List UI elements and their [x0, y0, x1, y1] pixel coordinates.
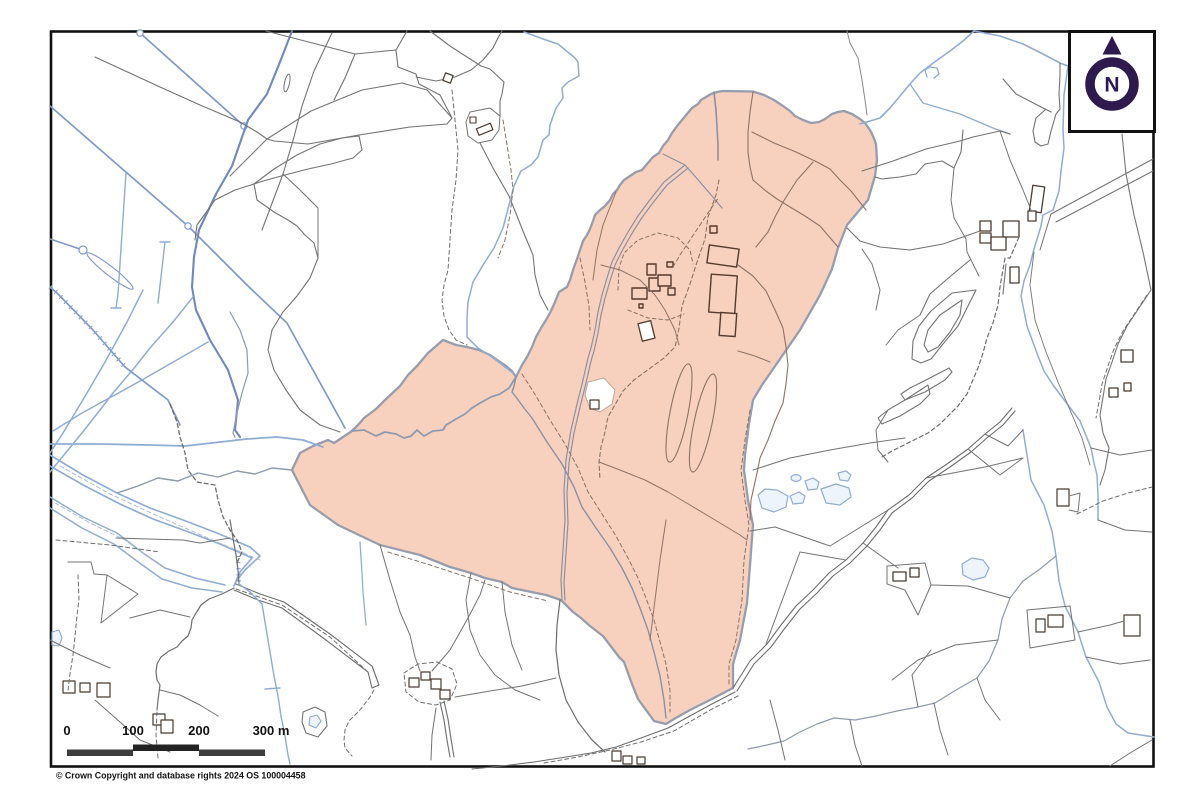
svg-text:200: 200 — [188, 723, 210, 738]
svg-text:100: 100 — [122, 723, 144, 738]
svg-text:0: 0 — [63, 723, 70, 738]
svg-text:N: N — [1104, 74, 1119, 97]
svg-text:© Crown Copyright and database: © Crown Copyright and database rights 20… — [56, 771, 306, 781]
svg-text:300 m: 300 m — [253, 723, 290, 738]
